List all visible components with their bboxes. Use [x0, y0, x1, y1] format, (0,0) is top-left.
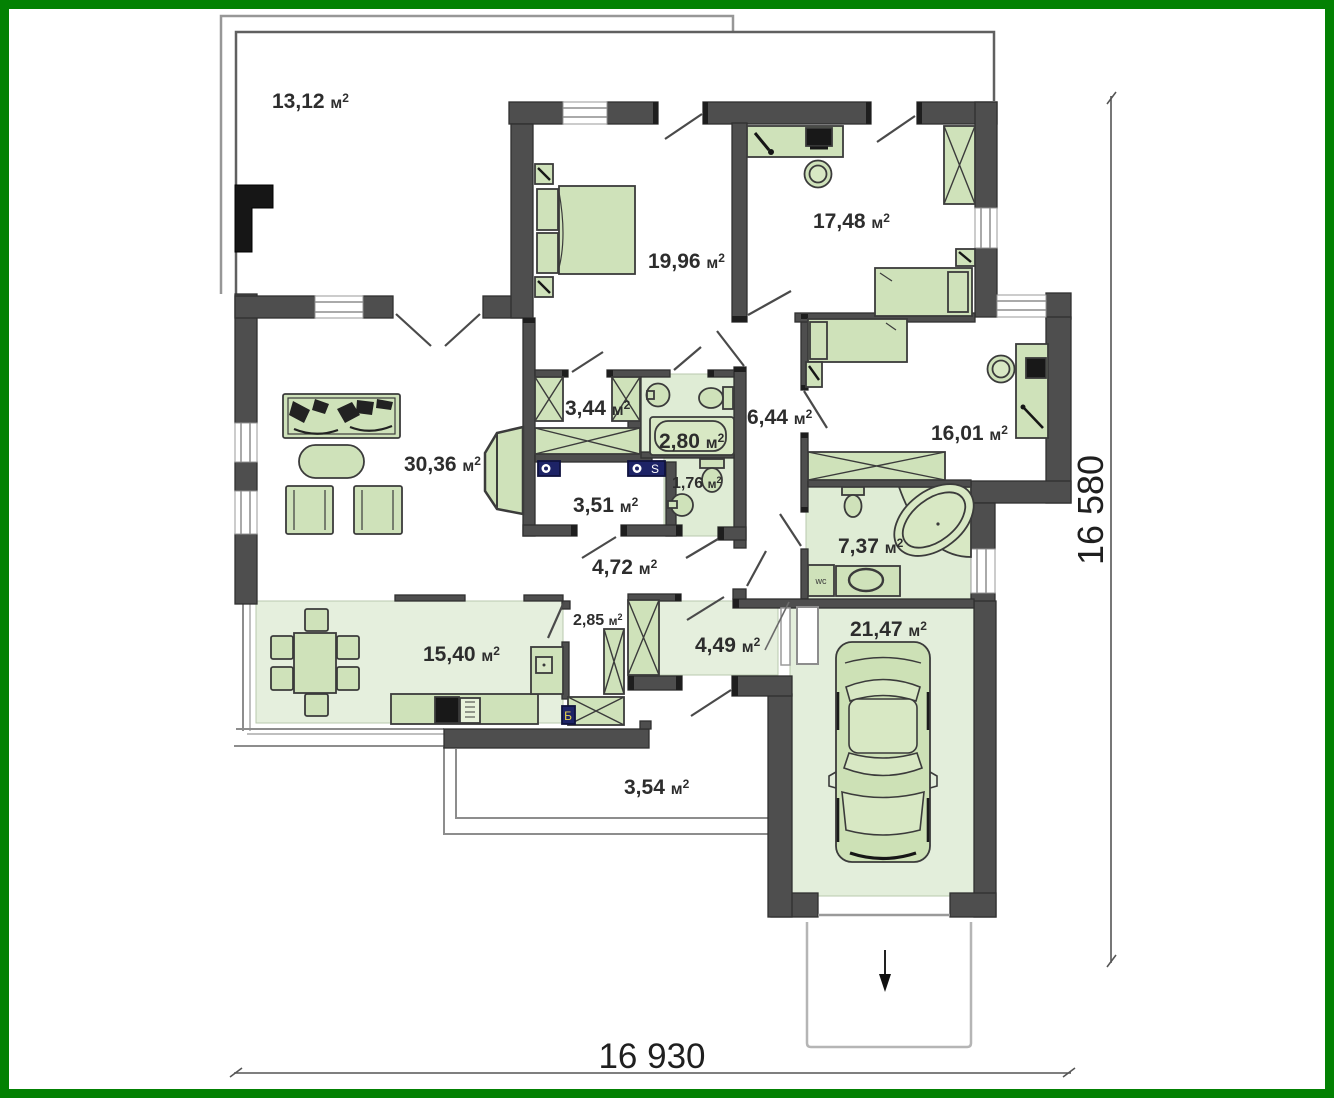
- svg-text:Б: Б: [564, 709, 572, 723]
- svg-text:wc: wc: [815, 576, 827, 586]
- svg-text:1,76 м2: 1,76 м2: [672, 475, 722, 492]
- svg-text:16 580: 16 580: [1070, 455, 1111, 565]
- svg-text:16 930: 16 930: [598, 1037, 705, 1076]
- svg-text:2,85 м2: 2,85 м2: [573, 612, 623, 629]
- svg-text:S: S: [651, 462, 659, 476]
